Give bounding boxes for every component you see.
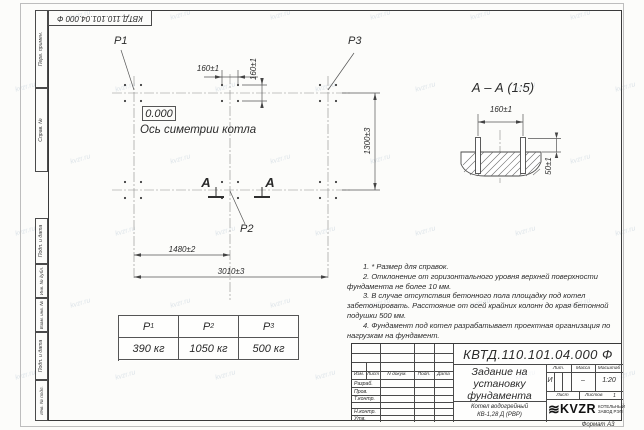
- tb-row-utv: Утв.: [354, 416, 366, 422]
- boiler-axis-label: Ось симетрии котла: [140, 124, 290, 136]
- tb-line: [352, 362, 453, 363]
- tb-line: [562, 372, 563, 391]
- tb-product-2: КВ-1,28 Д (РВР): [453, 412, 546, 418]
- notes-block: 1. * Размер для справок. 2. Отклонение о…: [347, 262, 617, 340]
- tb-header-doc: N докум.: [380, 372, 414, 377]
- tb-line: [352, 402, 453, 403]
- weights-header-p1: Р1: [119, 316, 179, 338]
- weights-header-p3-sym: Р: [263, 321, 270, 333]
- tb-sheet-label: Лист: [546, 393, 579, 398]
- dim-160-horizontal: 160±1: [190, 64, 226, 73]
- load-weights-table: Р1 Р2 Р3 390 кг 1050 кг 500 кг: [118, 315, 299, 361]
- weights-header-p1-sub: 1: [150, 323, 154, 330]
- format-note: Формат А3: [560, 422, 636, 428]
- weights-header-p3-sub: 3: [270, 323, 274, 330]
- plan-label-p3: Р3: [348, 35, 372, 47]
- tb-row-prov: Пров.: [354, 389, 368, 395]
- tb-header-list: Лист: [366, 372, 380, 377]
- plan-label-p1: Р1: [114, 35, 138, 47]
- tb-designation: КВТД.110.101.04.000 Ф: [453, 347, 623, 362]
- kvzr-logo-text: KVZR: [560, 402, 596, 416]
- weights-value-p1: 390 кг: [119, 338, 179, 360]
- weights-value-p3: 500 кг: [239, 338, 299, 360]
- tb-line: [352, 415, 453, 416]
- title-block: Изм. Лист N докум. Подп. Дата Разраб. Пр…: [351, 343, 622, 421]
- section-dim-160: 160±1: [480, 105, 522, 114]
- tb-line: [414, 344, 415, 422]
- note-2: 2. Отклонение от горизонтального уровня …: [347, 272, 617, 292]
- tb-header-podp: Подп.: [414, 372, 434, 377]
- dim-160-vertical: 160±1: [249, 54, 259, 84]
- tb-doc-name-3: фундамента: [453, 390, 546, 402]
- weights-header-p1-sym: Р: [143, 321, 150, 333]
- note-4: 4. Фундамент под котел разрабатывает про…: [347, 321, 617, 341]
- weights-header-p2-sub: 2: [210, 323, 214, 330]
- tb-line: [554, 372, 555, 391]
- tb-lit-label: Лит.: [546, 366, 571, 371]
- section-letter-left: А: [199, 175, 213, 190]
- tb-doc-name-2: установку: [453, 378, 546, 390]
- tb-sheets-label: Листов: [585, 393, 602, 398]
- tb-line: [434, 344, 435, 422]
- tb-scale-label: Масштаб: [595, 366, 623, 371]
- tb-row-nkontr: Н.контр.: [354, 409, 376, 415]
- kvzr-logo-caption: КОТЕЛЬНЫЙ ЗАВОД РЭП: [598, 404, 625, 414]
- note-3: 3. В случае отсутствия бетонного пола пл…: [347, 291, 617, 320]
- dim-3010: 3010±3: [201, 267, 261, 276]
- tb-sheets-value: 1: [613, 393, 616, 399]
- tb-row-razrab: Разраб.: [354, 381, 373, 387]
- tb-line: [380, 344, 381, 422]
- dim-1480: 1480±2: [152, 245, 212, 254]
- section-view-title: А – А (1:5): [458, 80, 548, 95]
- tb-line: [352, 353, 453, 354]
- tb-line: [579, 391, 580, 399]
- tb-scale-value: 1:20: [595, 377, 623, 384]
- drawing-sheet: kvzr.rukvzr.rukvzr.rukvzr.rukvzr.rukvzr.…: [0, 0, 644, 430]
- tb-lit-value: И: [546, 377, 554, 384]
- tb-header-data: Дата: [434, 372, 453, 377]
- weights-header-p2: Р2: [179, 316, 239, 338]
- tb-product-1: Котел водогрейный: [453, 404, 546, 410]
- tb-line: [546, 399, 623, 400]
- dim-1300: 1300±3: [363, 126, 373, 156]
- tb-doc-name-1: Задание на: [453, 366, 546, 378]
- note-1: 1. * Размер для справок.: [347, 262, 617, 272]
- tb-header-izm: Изм.: [352, 372, 366, 377]
- weights-value-p2: 1050 кг: [179, 338, 239, 360]
- level-mark-box: 0.000: [142, 106, 176, 121]
- weights-header-p3: Р3: [239, 316, 299, 338]
- section-foundation-outline: [461, 152, 541, 176]
- tb-line: [546, 372, 623, 373]
- tb-mass-label: Масса: [571, 366, 595, 371]
- kvzr-logo-icon: ≋: [548, 401, 560, 418]
- section-cut-ticks: [216, 187, 262, 197]
- section-dim-50: 50±1: [544, 151, 554, 181]
- plan-label-p2: Р2: [240, 223, 264, 235]
- kvzr-caption-line-2: ЗАВОД РЭП: [598, 409, 625, 414]
- section-letter-right: А: [263, 175, 277, 190]
- anchor-bolt-dots: [124, 84, 337, 199]
- tb-row-tkontr: Т.контр.: [354, 396, 375, 402]
- tb-mass-value: –: [571, 377, 595, 384]
